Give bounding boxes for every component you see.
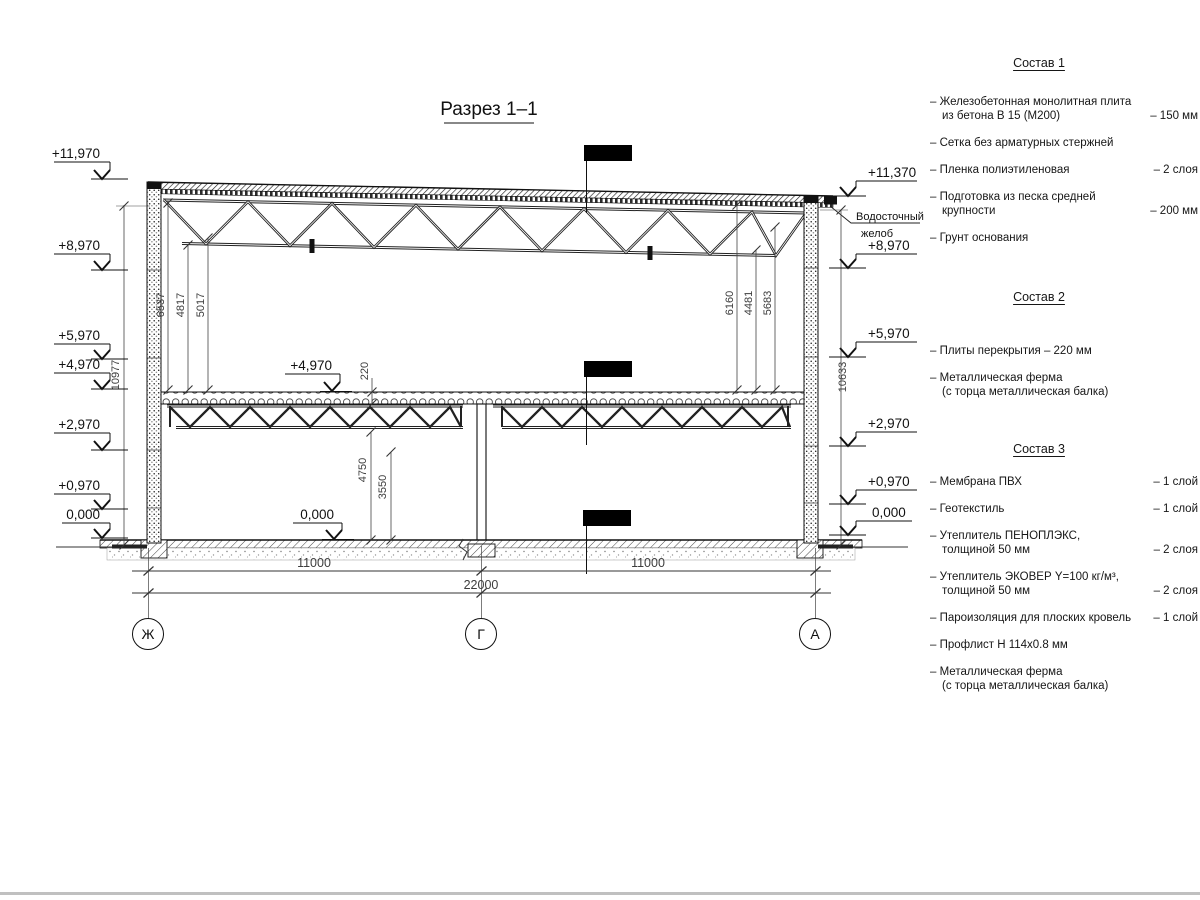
- elevation-label: +11,970: [52, 146, 100, 161]
- item-value: – 1 слой: [1147, 502, 1198, 516]
- item-text: – Пленка полиэтиленовая: [930, 163, 1148, 177]
- dim-total: 22000: [464, 578, 499, 592]
- item-text: – Утеплитель ЭКОВЕР Y=100 кг/м³, толщино…: [930, 570, 1148, 598]
- item-text: – Плиты перекрытия – 220 мм: [930, 344, 1192, 358]
- list-item: – Мембрана ПВХ – 1 слой: [930, 475, 1198, 489]
- list-item: – Подготовка из песка средней крупности …: [930, 190, 1198, 218]
- dim-v1: 4750: [357, 458, 369, 482]
- list-item: – Утеплитель ЭКОВЕР Y=100 кг/м³, толщино…: [930, 570, 1198, 598]
- elevation-label: +4,970: [58, 357, 100, 372]
- item-text: – Профлист Н 114х0.8 мм: [930, 638, 1192, 652]
- floor-slab: [161, 392, 805, 404]
- section-title: Состав 2: [930, 290, 1148, 304]
- dim-span-left: 11000: [297, 556, 331, 570]
- roof-truss: [163, 200, 806, 260]
- apron-left: [112, 545, 147, 549]
- dim-inner: 6160: [724, 291, 736, 315]
- item-value: – 200 мм: [1144, 204, 1198, 218]
- gutter-label-line1: Водосточный: [856, 211, 924, 223]
- elevation-label: +2,970: [868, 416, 910, 431]
- dim-inner: 5683: [762, 291, 774, 315]
- composition-section-2: Состав 2 – Плиты перекрытия – 220 мм – М…: [930, 290, 1198, 412]
- center-column: [477, 404, 486, 544]
- composition-section-3: Состав 3 – Мембрана ПВХ – 1 слой – Геоте…: [930, 442, 1198, 706]
- composition-section-1: Состав 1 – Железобетонная монолитная пли…: [930, 56, 1198, 258]
- elevation-label: +0,970: [868, 474, 910, 489]
- page-title: Разрез 1–1: [440, 99, 538, 120]
- item-text: – Грунт основания: [930, 231, 1192, 245]
- axis-letter-g: Г: [477, 626, 485, 642]
- elevation-label: +11,370: [868, 165, 916, 180]
- wall-right: [804, 196, 818, 543]
- elevation-label: 0,000: [872, 505, 906, 520]
- elevation-label: +5,970: [868, 326, 910, 341]
- item-text: – Металлическая ферма (с торца металличе…: [930, 665, 1192, 693]
- dim-inner: 4481: [743, 291, 755, 315]
- dim-inner: 4817: [175, 293, 187, 317]
- floor-truss-right: [493, 406, 791, 428]
- dim-left-total: 10977: [110, 360, 122, 391]
- item-text: – Геотекстиль: [930, 502, 1147, 516]
- list-item: – Геотекстиль – 1 слой: [930, 502, 1198, 516]
- drawing-sheet: Разрез 1–1: [0, 0, 1200, 900]
- splice-mark: [310, 239, 315, 253]
- elevation-label: 0,000: [66, 507, 100, 522]
- dim-span-right: 11000: [631, 556, 665, 570]
- dim-slab: 220: [359, 362, 371, 380]
- ground-slab: [56, 539, 908, 560]
- item-text: – Металлическая ферма (с торца металличе…: [930, 371, 1192, 399]
- list-item: – Плиты перекрытия – 220 мм: [930, 344, 1198, 358]
- item-value: – 150 мм: [1144, 109, 1198, 123]
- axis-bubbles: Ж Г А: [133, 619, 831, 650]
- elevation-label: +0,970: [58, 478, 100, 493]
- item-text: – Подготовка из песка средней крупности: [930, 190, 1144, 218]
- gutter-annotation: Водосточный желоб: [830, 206, 924, 240]
- gutter-box: [824, 197, 837, 205]
- elevation-marks-interior: +4,970 0,000: [285, 358, 354, 540]
- elevation-label: +2,970: [58, 417, 100, 432]
- dim-right-total: 10633: [837, 362, 849, 393]
- section-title: Состав 3: [930, 442, 1148, 456]
- item-text: – Сетка без арматурных стержней: [930, 136, 1192, 150]
- list-item: – Утеплитель ПЕНОПЛЭКС, толщиной 50 мм –…: [930, 529, 1198, 557]
- list-item: – Сетка без арматурных стержней: [930, 136, 1198, 150]
- section-drawing: Разрез 1–1: [0, 0, 930, 700]
- axis-letter-a: А: [810, 626, 820, 642]
- dim-v2: 3550: [377, 475, 389, 499]
- item-text: – Железобетонная монолитная плита из бет…: [930, 95, 1144, 123]
- item-text: – Мембрана ПВХ: [930, 475, 1147, 489]
- item-value: – 2 слоя: [1148, 163, 1198, 177]
- dim-inner: 6537: [155, 293, 167, 317]
- splice-mark: [648, 246, 653, 260]
- item-value: – 2 слоя: [1148, 543, 1198, 557]
- elevation-label: +5,970: [58, 328, 100, 343]
- item-text: – Утеплитель ПЕНОПЛЭКС, толщиной 50 мм: [930, 529, 1148, 557]
- elevation-label: +8,970: [58, 238, 100, 253]
- list-item: – Пленка полиэтиленовая – 2 слоя: [930, 163, 1198, 177]
- apron-right: [818, 545, 853, 549]
- item-text: – Пароизоляция для плоских кровель: [930, 611, 1147, 625]
- item-value: – 2 слоя: [1148, 584, 1198, 598]
- dim-inner: 5017: [195, 293, 207, 317]
- wall-left: [147, 182, 161, 543]
- item-value: – 1 слой: [1147, 611, 1198, 625]
- section-title: Состав 1: [930, 56, 1148, 70]
- list-item: – Металлическая ферма (с торца металличе…: [930, 371, 1198, 399]
- legend-panel: Состав 1 – Железобетонная монолитная пли…: [930, 0, 1198, 900]
- elevation-label: +8,970: [868, 238, 910, 253]
- axis-letter-zh: Ж: [142, 626, 155, 642]
- list-item: – Металлическая ферма (с торца металличе…: [930, 665, 1198, 693]
- elevation-label: +4,970: [290, 358, 332, 373]
- floor-truss-left: [167, 406, 463, 428]
- list-item: – Пароизоляция для плоских кровель – 1 с…: [930, 611, 1198, 625]
- list-item: – Железобетонная монолитная плита из бет…: [930, 95, 1198, 123]
- elevation-label: 0,000: [300, 507, 334, 522]
- list-item: – Грунт основания: [930, 231, 1198, 245]
- drawing-title: Разрез 1–1: [440, 99, 538, 123]
- window-bottom-edge: [0, 892, 1200, 895]
- elevation-marks-left: +11,970 +8,970 +5,970 +4,970 +2,970 +0,9…: [52, 146, 128, 538]
- list-item: – Профлист Н 114х0.8 мм: [930, 638, 1198, 652]
- item-value: – 1 слой: [1147, 475, 1198, 489]
